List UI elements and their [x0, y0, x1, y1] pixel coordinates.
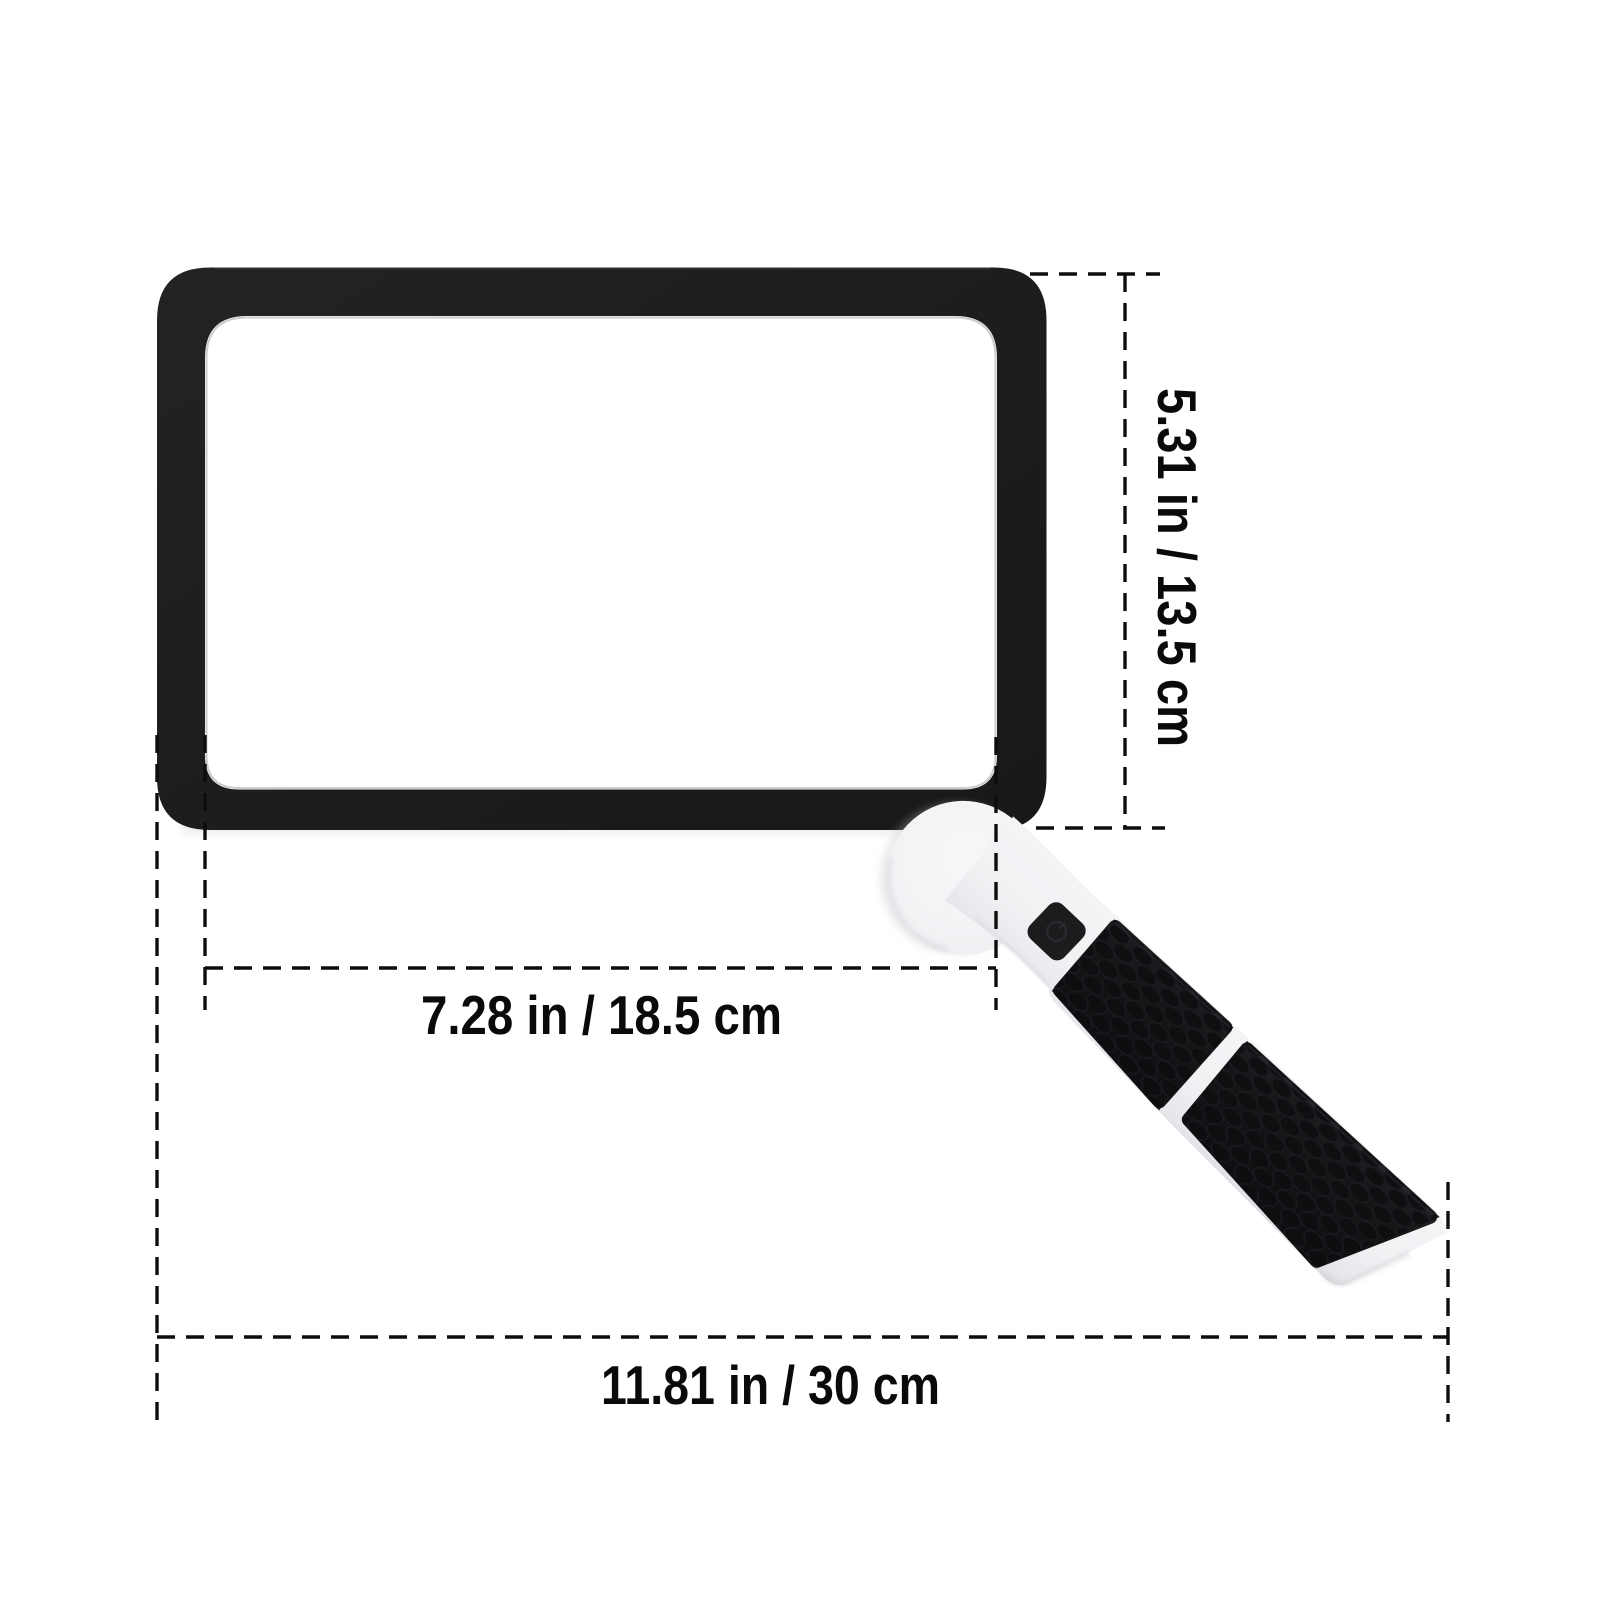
svg-text:7.28 in / 18.5 cm: 7.28 in / 18.5 cm [421, 984, 782, 1046]
svg-text:11.81 in / 30 cm: 11.81 in / 30 cm [601, 1354, 940, 1416]
svg-text:5.31 in / 13.5 cm: 5.31 in / 13.5 cm [1146, 388, 1208, 747]
